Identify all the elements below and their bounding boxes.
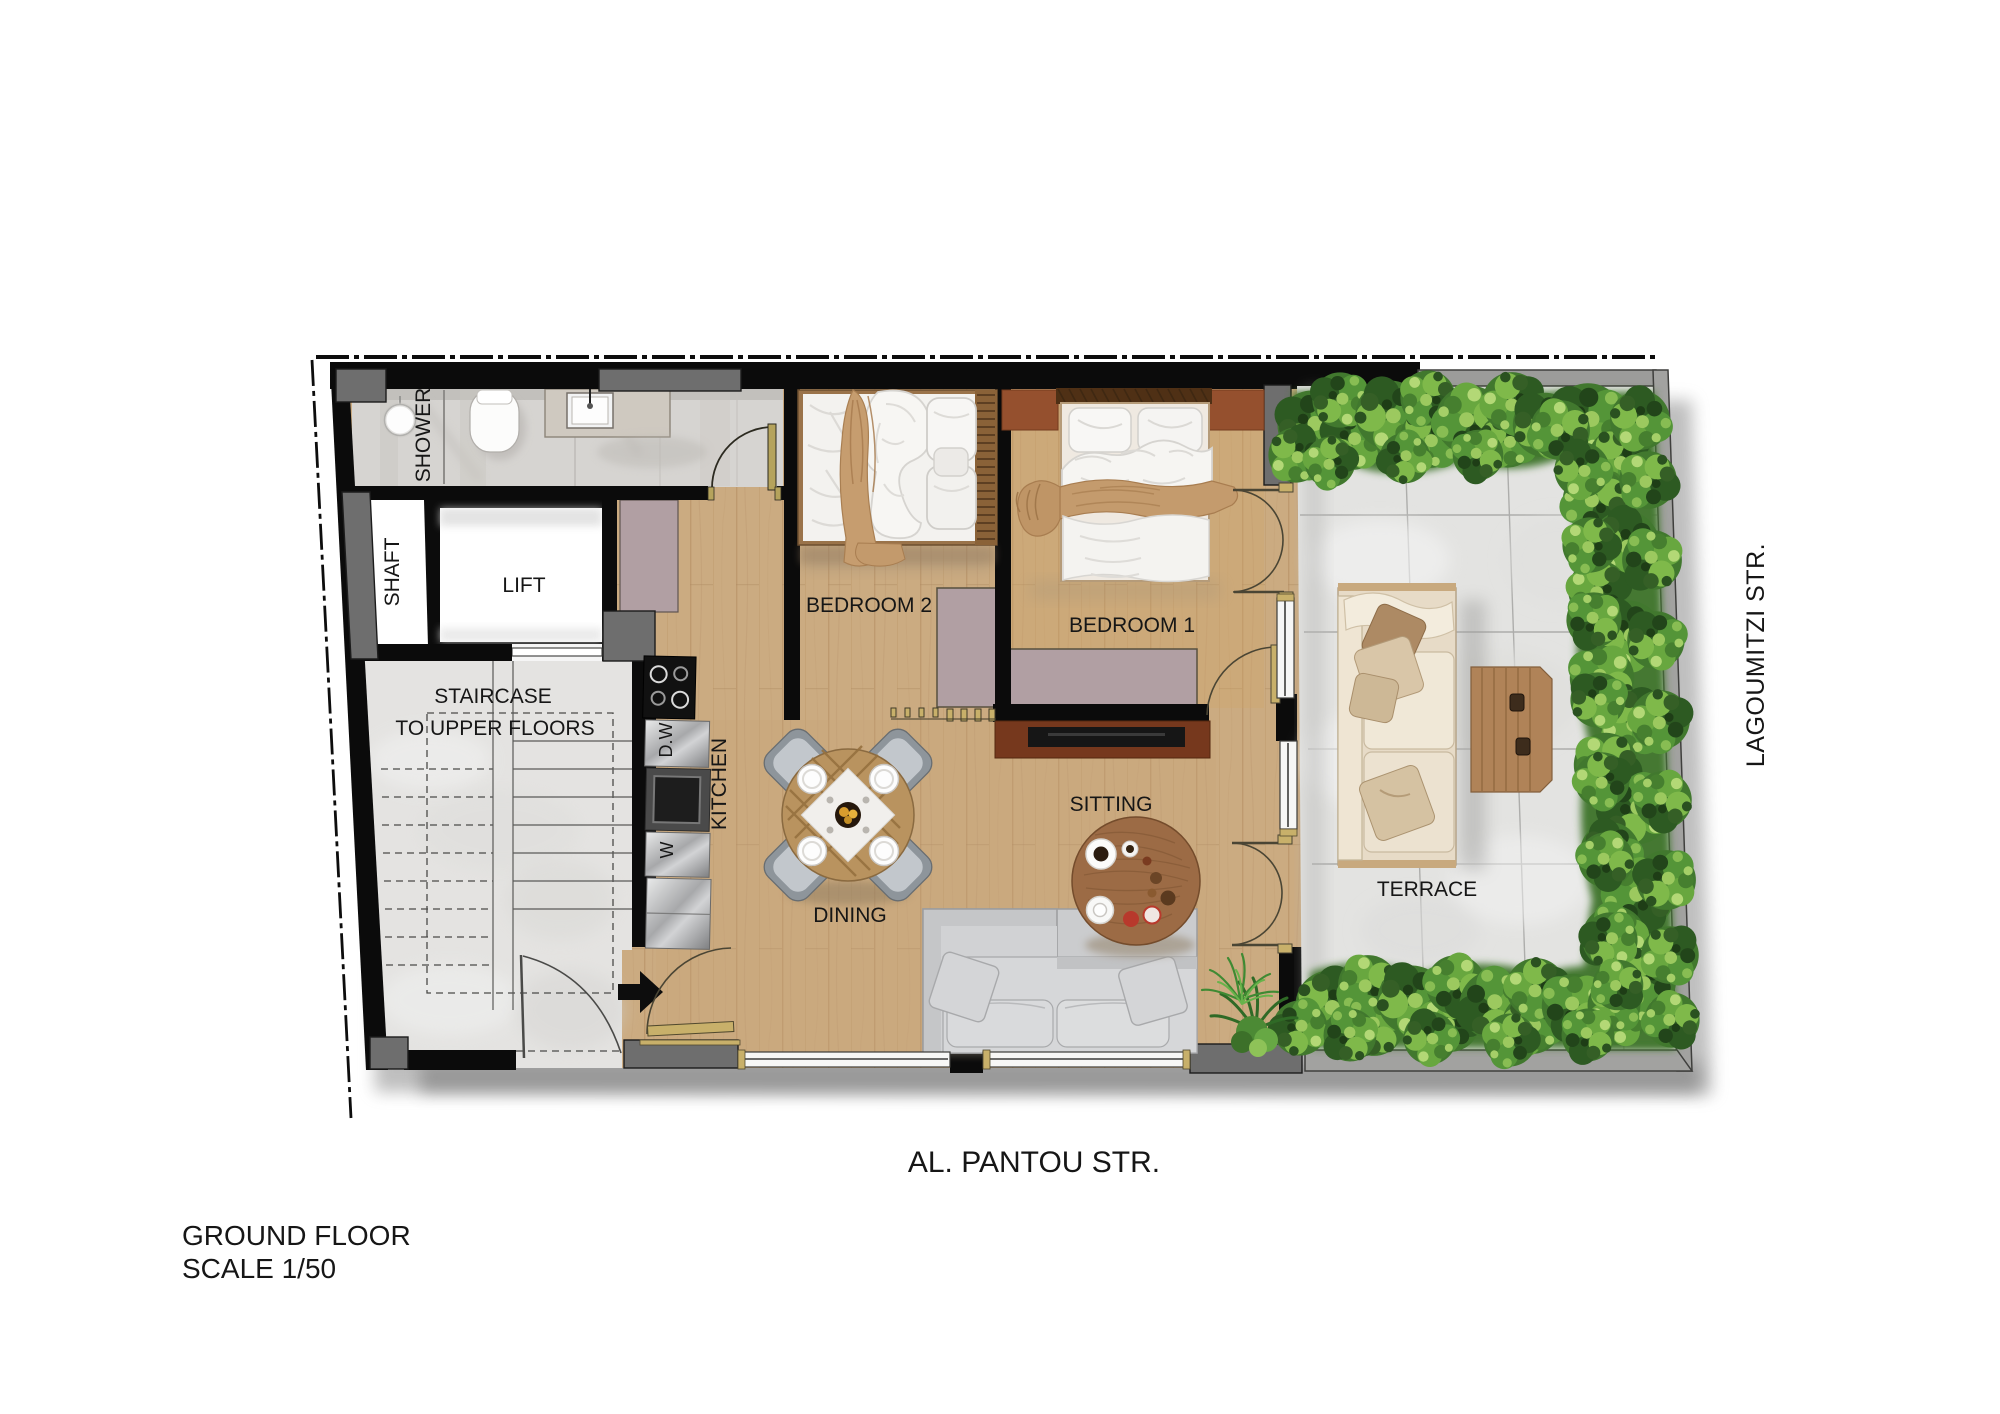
svg-text:BEDROOM 2: BEDROOM 2 [806, 594, 932, 617]
svg-text:LIFT: LIFT [502, 574, 545, 597]
svg-text:W: W [657, 842, 677, 859]
svg-text:DINING: DINING [813, 904, 887, 927]
svg-text:SHOWER: SHOWER [412, 388, 435, 483]
svg-text:SITTING: SITTING [1070, 793, 1153, 816]
svg-text:AL. PANTOU STR.: AL. PANTOU STR. [908, 1146, 1160, 1179]
svg-text:SCALE 1/50: SCALE 1/50 [182, 1253, 336, 1284]
svg-text:TERRACE: TERRACE [1377, 878, 1477, 901]
svg-text:GROUND FLOOR: GROUND FLOOR [182, 1220, 411, 1251]
svg-text:TO UPPER FLOORS: TO UPPER FLOORS [395, 717, 594, 740]
svg-text:SHAFT: SHAFT [381, 537, 404, 606]
svg-text:STAIRCASE: STAIRCASE [434, 685, 551, 708]
svg-text:KITCHEN: KITCHEN [708, 738, 731, 830]
svg-text:BEDROOM 1: BEDROOM 1 [1069, 614, 1195, 637]
svg-text:LAGOUMITZI STR.: LAGOUMITZI STR. [1742, 543, 1770, 767]
svg-text:D.W: D.W [656, 723, 676, 758]
